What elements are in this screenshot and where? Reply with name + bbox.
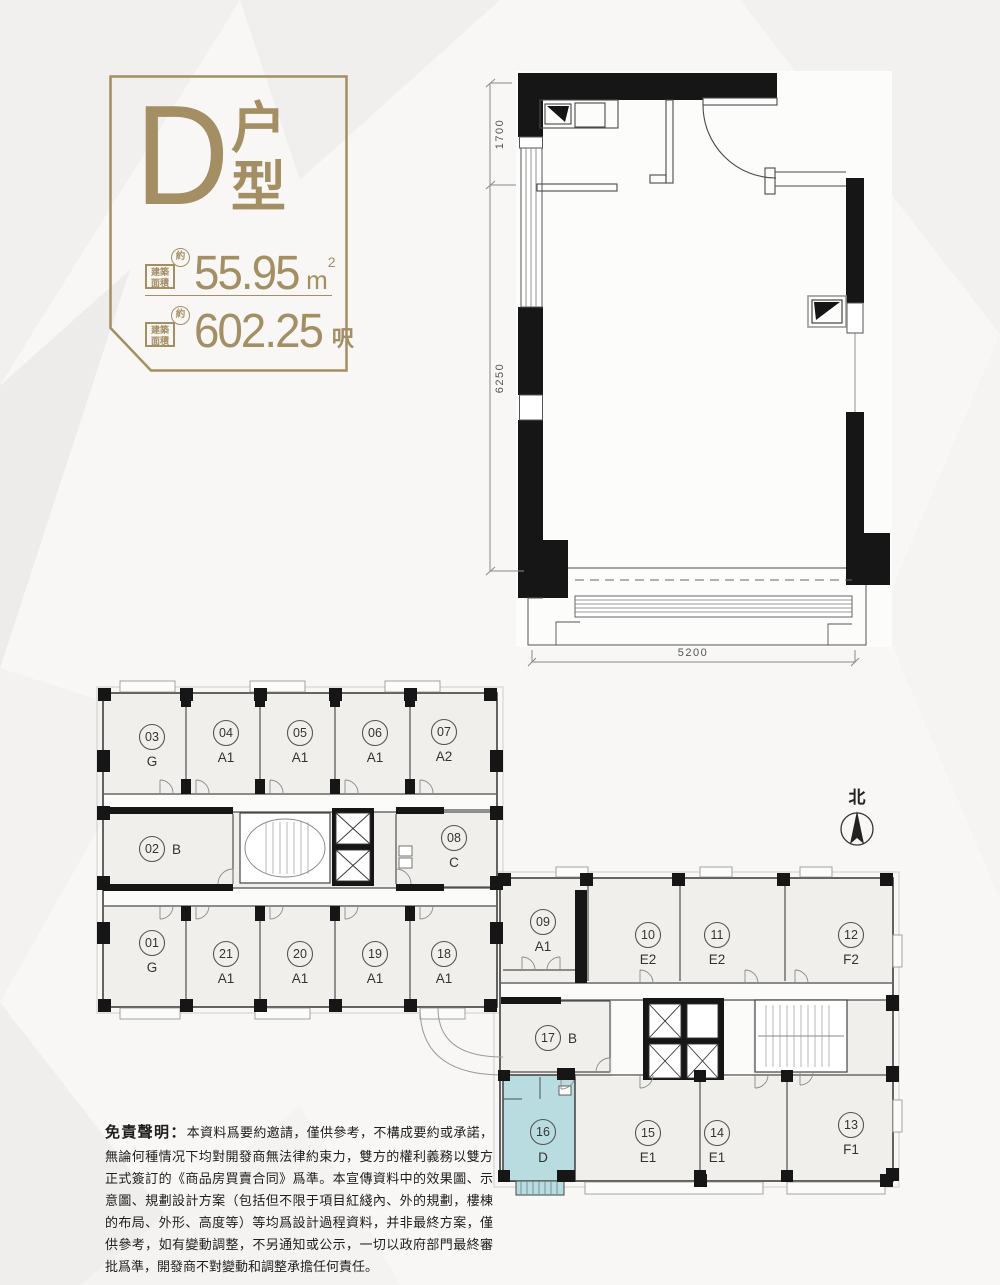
- gross-area-label: 建築 面積: [145, 264, 175, 289]
- svg-text:E1: E1: [640, 1150, 657, 1165]
- svg-text:B: B: [568, 1031, 577, 1046]
- disclaimer: 免責聲明：本資料爲要約邀請，僅供參考，不構成要約或承諾，無論何種情况下均對開發商…: [105, 1120, 493, 1278]
- svg-text:A1: A1: [436, 971, 453, 986]
- svg-text:A1: A1: [535, 939, 552, 954]
- unit-type-letter: D: [135, 89, 226, 224]
- title-block: D 户 型 建築 面積 約 55.95 m 2 建築 面積 約 602.25 呎: [109, 75, 348, 372]
- svg-text:E1: E1: [709, 1150, 726, 1165]
- svg-text:01: 01: [145, 936, 159, 950]
- svg-text:F2: F2: [843, 952, 859, 967]
- svg-text:G: G: [147, 960, 158, 975]
- svg-text:A1: A1: [218, 971, 235, 986]
- svg-text:A1: A1: [367, 971, 384, 986]
- svg-text:06: 06: [368, 726, 382, 740]
- area-value-sqm: 55.95: [194, 254, 299, 293]
- area-row-sqm: 建築 面積 約 55.95 m 2: [145, 245, 336, 293]
- svg-text:D: D: [538, 1150, 548, 1165]
- svg-text:B: B: [172, 842, 181, 857]
- svg-text:E2: E2: [709, 952, 726, 967]
- svg-text:F1: F1: [843, 1142, 859, 1157]
- svg-text:A1: A1: [292, 750, 309, 765]
- dimension-label-1700: 1700: [494, 119, 506, 149]
- approx-badge: 約: [171, 248, 190, 267]
- dimension-label-6250: 6250: [494, 363, 506, 393]
- unit-type-word: 户 型: [231, 99, 286, 218]
- unit-type-word-char1: 户: [231, 99, 286, 158]
- svg-text:19: 19: [368, 947, 382, 961]
- brochure-page: 1700 6250 5200: [0, 0, 1000, 1285]
- svg-text:20: 20: [293, 947, 307, 961]
- building-floor-plate: 03G 04A1 05A1 06A1 07A2 02B 08C 01G 21A1…: [97, 681, 902, 1195]
- svg-text:G: G: [147, 754, 158, 769]
- svg-text:04: 04: [219, 726, 233, 740]
- north-indicator: 北: [841, 788, 873, 845]
- svg-text:A1: A1: [367, 750, 384, 765]
- dimension-label-5200: 5200: [678, 647, 708, 659]
- unit-plan-paper: [516, 71, 892, 647]
- north-label: 北: [849, 788, 866, 807]
- svg-text:11: 11: [711, 928, 724, 942]
- svg-text:16: 16: [536, 1125, 550, 1139]
- area-unit-m: m: [306, 267, 328, 293]
- svg-text:18: 18: [437, 947, 451, 961]
- svg-text:A2: A2: [436, 749, 453, 764]
- area-divider: [145, 295, 332, 296]
- approx-badge: 約: [171, 306, 190, 325]
- area-unit-sup: 2: [328, 255, 336, 269]
- area-row-sqft: 建築 面積 約 602.25 呎: [145, 303, 354, 351]
- area-value-sqft: 602.25: [194, 312, 322, 351]
- svg-text:C: C: [449, 855, 459, 870]
- svg-text:14: 14: [710, 1126, 724, 1140]
- svg-text:09: 09: [536, 915, 550, 929]
- svg-text:E2: E2: [640, 952, 657, 967]
- svg-text:21: 21: [219, 947, 233, 961]
- svg-text:15: 15: [641, 1126, 655, 1140]
- svg-text:02: 02: [145, 842, 159, 856]
- disclaimer-heading: 免責聲明：: [105, 1124, 187, 1141]
- svg-text:A1: A1: [292, 971, 309, 986]
- svg-text:10: 10: [641, 928, 655, 942]
- svg-text:05: 05: [293, 726, 307, 740]
- unit-floor-plan: 1700 6250 5200: [486, 71, 892, 666]
- north-needle: [850, 811, 864, 844]
- svg-text:07: 07: [437, 725, 451, 739]
- svg-text:12: 12: [844, 928, 858, 942]
- unit-type-word-char2: 型: [231, 158, 286, 217]
- area-unit-sqft: 呎: [332, 327, 354, 351]
- svg-text:13: 13: [844, 1118, 858, 1132]
- disclaimer-body: 本資料爲要約邀請，僅供參考，不構成要約或承諾，無論何種情况下均對開發商無法律約束…: [105, 1125, 493, 1274]
- left-core: [240, 808, 374, 886]
- gross-area-label: 建築 面積: [145, 322, 175, 347]
- svg-text:17: 17: [541, 1031, 555, 1045]
- svg-text:08: 08: [447, 831, 461, 845]
- svg-text:A1: A1: [218, 750, 235, 765]
- svg-text:03: 03: [145, 730, 159, 744]
